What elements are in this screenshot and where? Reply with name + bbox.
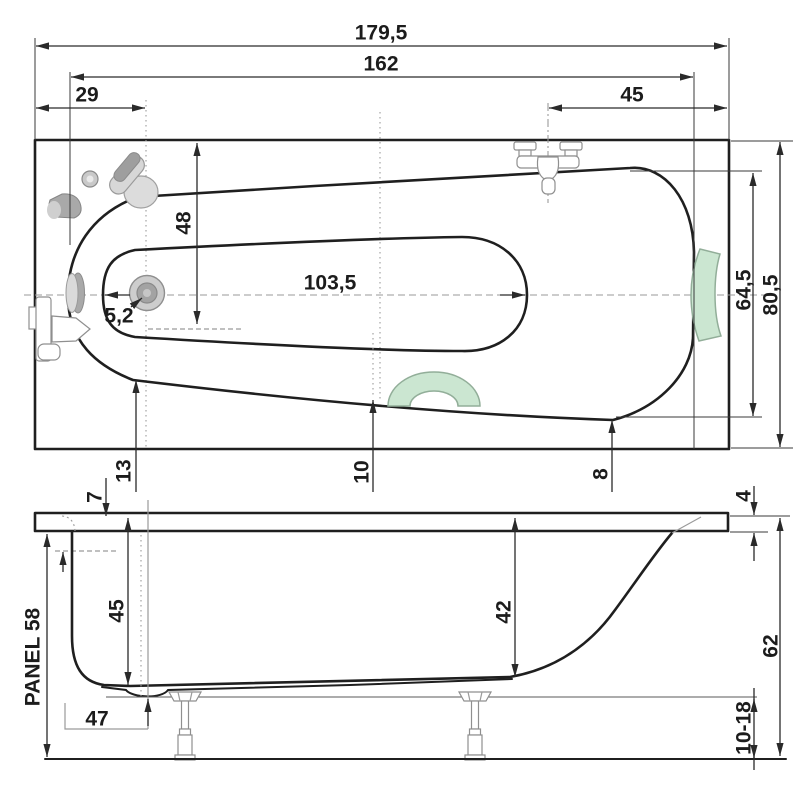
hand-shower-set <box>47 150 158 219</box>
headrest-pillow <box>691 249 721 341</box>
leg-left <box>169 692 201 760</box>
dim-depth-head: 42 <box>493 600 516 623</box>
dim-sump-height: 47 <box>85 708 108 731</box>
faucet-spout <box>542 178 555 194</box>
leg-column <box>472 701 479 729</box>
dim-rim-thickness: 4 <box>733 490 756 502</box>
dim-rim-edge: 7 <box>84 491 107 503</box>
grab-handle <box>388 372 480 406</box>
leg-adjuster <box>178 735 192 755</box>
dim-outer-width: 80,5 <box>760 274 783 315</box>
dim-overall-length: 179,5 <box>355 22 408 45</box>
dim-drain-diameter: 5,2 <box>104 305 133 328</box>
drawing-canvas: 179,5 162 29 45 48 103,5 5,2 64,5 80,5 1… <box>0 0 800 800</box>
side-view: 7 4 45 42 PANEL 58 47 62 10-18 <box>22 478 791 770</box>
tub-profile <box>72 532 672 686</box>
dim-drain-offset: 29 <box>75 84 98 107</box>
dim-faucet-offset: 45 <box>620 84 644 107</box>
dim-clearance-mid: 10 <box>351 460 374 483</box>
dim-clearance-head: 8 <box>590 468 613 480</box>
faucet-tab-right <box>565 150 577 156</box>
dim-inner-width: 64,5 <box>733 269 756 310</box>
faucet-plate-right <box>560 142 582 150</box>
dim-feet-adjust: 10-18 <box>733 701 756 755</box>
leg-mount <box>169 692 201 701</box>
top-view: 179,5 162 29 45 48 103,5 5,2 64,5 80,5 1… <box>24 22 793 493</box>
leg-right <box>459 692 491 760</box>
soap-dish-highlight <box>47 201 61 219</box>
dim-rim-length: 162 <box>363 53 398 76</box>
mixer-spout <box>52 316 90 342</box>
drain-center <box>143 289 151 297</box>
overflow-cover <box>66 274 78 313</box>
leg-adjuster-cap <box>180 729 191 735</box>
rim-hidden-corner <box>62 516 75 531</box>
dim-basin-length: 103,5 <box>304 272 357 295</box>
rim-bar <box>35 513 728 531</box>
bathtub-technical-drawing: 179,5 162 29 45 48 103,5 5,2 64,5 80,5 1… <box>0 0 800 800</box>
leg-adjuster <box>468 735 482 755</box>
dim-clearance-foot: 13 <box>113 459 136 482</box>
dim-total-height: 62 <box>760 634 783 657</box>
leg-column <box>182 701 189 729</box>
dim-depth-foot: 45 <box>106 599 129 623</box>
faucet-plate-left <box>514 142 536 150</box>
mixer-knob <box>38 344 60 360</box>
dim-inner-half-width: 48 <box>173 211 196 235</box>
leg-adjuster-cap <box>470 729 481 735</box>
dim-panel: PANEL 58 <box>22 607 45 706</box>
faucet-tab-left <box>519 150 531 156</box>
leg-mount <box>459 692 491 701</box>
wall-socket-center <box>87 176 94 183</box>
top-faucet <box>514 142 582 194</box>
